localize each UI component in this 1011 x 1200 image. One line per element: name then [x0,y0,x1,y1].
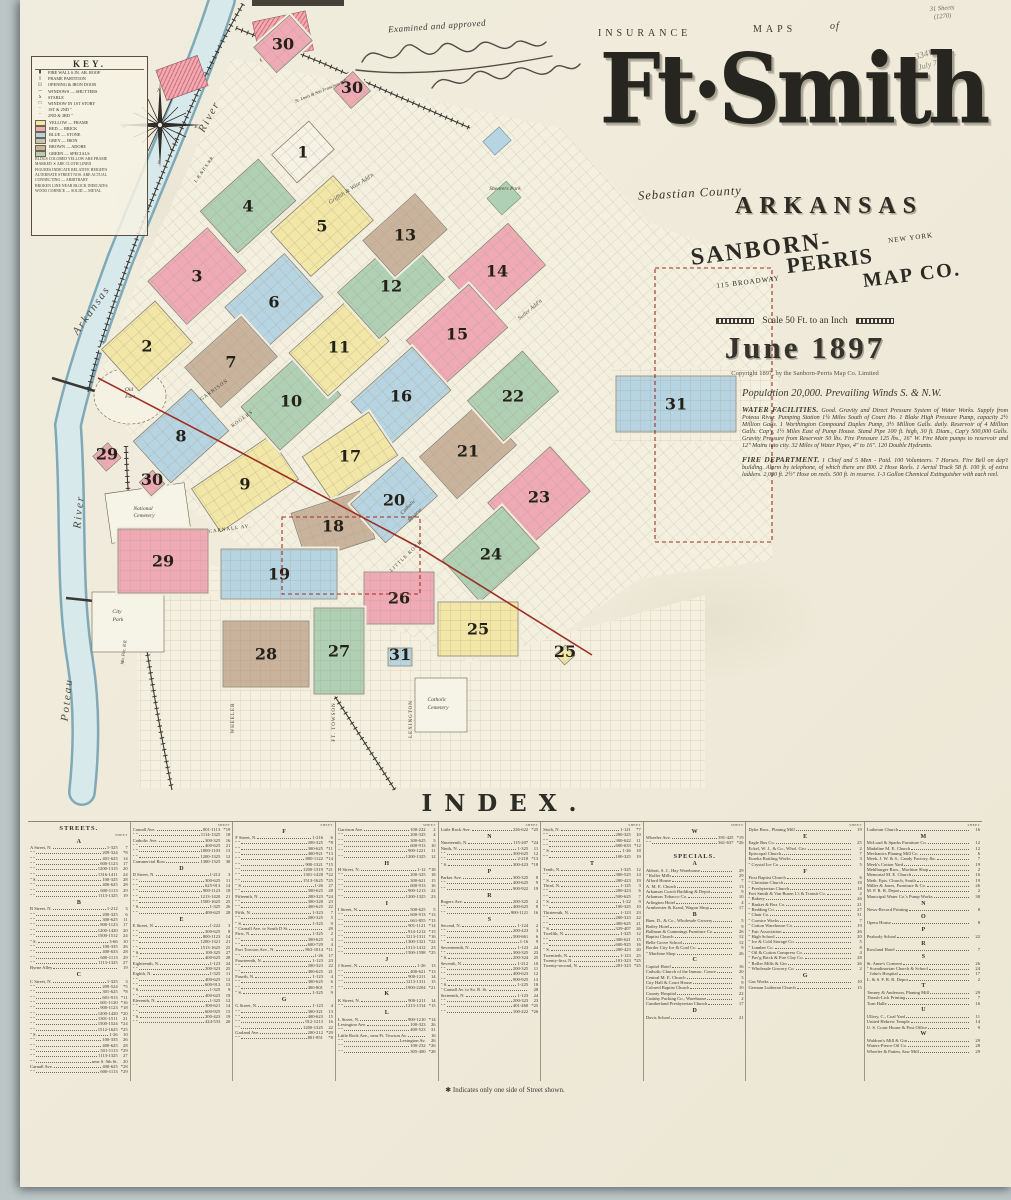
index-letter-header: P [441,869,539,875]
index-dot-leader [36,1019,97,1020]
publisher-city: NEW YORK [888,231,934,244]
index-entry: U. S. Court House & Post Office9 [867,1025,980,1030]
index-dot-leader [790,889,851,890]
index-entry-name: German Lutheran Church [748,985,795,990]
index-dot-leader [251,934,311,935]
index-dot-leader [549,945,614,946]
index-dot-leader [447,931,512,932]
index-entry-name: ″ Wholesale Grocery Co. [748,966,794,971]
state-label: ARKANSAS [735,193,923,220]
index-entry-sheet: 21 [733,1015,743,1020]
index-entry-name: Twenty-second, N. [543,963,578,968]
index-entry-sheet: 16 [970,827,980,832]
index-dot-leader [157,1001,209,1002]
index-column-9: SHEETLutheran Church16MMcLoud & Sparks F… [864,822,982,1081]
index-dot-leader [139,969,204,970]
index-dot-leader [447,907,512,908]
index-letter-header: G [748,973,861,979]
index-dot-leader [289,929,322,930]
index-entry-sheet: *21 [426,985,436,990]
index-dot-leader [920,1052,969,1053]
index-dot-leader [243,924,311,925]
index-dot-leader [139,846,204,847]
index-dot-leader [241,849,306,850]
index-entry: ″ S.1-3259 [235,990,333,995]
index-letter-header: F [748,869,861,875]
index-dot-leader [367,1025,409,1026]
index-dot-leader [241,966,306,967]
index-entry: Municipal Water Co.'s Pump Works30 [867,894,980,899]
index-dot-leader [241,1017,306,1018]
index-dot-leader [36,987,101,988]
index-dot-leader [447,859,517,860]
index-dot-leader [241,870,302,871]
index-entry-range: 600-1113 [100,1069,117,1074]
index-dot-leader [36,915,101,916]
index-dot-leader [930,993,969,994]
index-letter-header: M [867,834,980,840]
index-dot-leader [687,978,733,979]
index-dot-leader [448,958,512,959]
index-dot-leader [53,848,106,849]
index-dot-leader [447,1006,512,1007]
index-dot-leader [344,841,409,842]
index-dot-leader [909,980,969,981]
index-section-title: SPECIALS. [646,853,744,860]
key-symbol-list: ▮FIRE WALL 6 IN. AB. ROOF▯FRAME PARTITIO… [35,70,144,120]
index-dot-leader [447,889,512,890]
index-dot-leader [36,1072,99,1073]
index-sheet-label: SHEET [646,823,744,827]
index-entry-name: News-Record Printing [867,907,908,912]
index-dot-leader [241,1012,306,1013]
index-entry-sheet: *26 [733,840,743,845]
index-entry-name: Little Rock Ave., near Ft. Towson Av. [338,1033,407,1038]
index-entry: Dyke Bros., Planing Mill19 [748,827,861,832]
index-dot-leader [139,958,204,959]
index-letter-header: S [441,917,539,923]
index-dot-leader [241,988,306,989]
index-dot-leader [804,953,851,954]
index-dot-leader [344,857,405,858]
index-dot-leader [766,899,851,900]
index-dot-leader [463,878,512,879]
index-letter-header: W [646,829,744,835]
index-sheet-label: SHEET [235,823,333,827]
index-dot-leader [776,910,851,911]
index-dot-leader [896,950,969,951]
index-dot-leader [36,963,97,964]
index-dot-leader [139,902,200,903]
index-dot-leader [797,988,851,989]
index-entry: ″ Crystal Ice Co.5 [748,862,861,867]
index-spacer [646,846,744,851]
index-dot-leader [770,915,850,916]
index-entry-sheet: 15 [852,985,862,990]
index-entry: ″ ″801-851*8 [235,1035,333,1040]
index-entry-range: 400-523 [410,1027,425,1032]
index-entry-range: 361-637 [718,840,733,845]
index-entry-name: ″ ″ [338,950,343,955]
index-letter-header: C [30,972,128,978]
index-letter-header: B [646,912,744,918]
index-dot-leader [364,830,409,831]
index-dot-leader [344,1006,405,1007]
index-dot-leader [782,854,850,855]
index-dot-leader [139,942,200,943]
index-dot-leader [888,1004,969,1005]
index-dot-leader [489,990,528,991]
index-dot-leader [447,1001,512,1002]
index-dot-leader [775,948,851,949]
index-entry-sheet: 16 [970,1001,980,1006]
scale-text: Scale 50 Ft. to an Inch [762,316,847,326]
index-entry-name: Municipal Water Co.'s Pump Works [867,894,933,899]
index-dot-leader [38,880,102,881]
index-entry-name: Peabody School [867,934,897,939]
index-dot-leader [36,1040,101,1041]
index-entry: ″ ″100-222*26 [441,1009,539,1014]
index-dot-leader [360,1020,407,1021]
index-dot-leader [794,926,851,927]
index-dot-leader [468,843,512,844]
index-dot-leader [713,921,732,922]
index-column-3: SHEETFF Street, N.1-2166″ ″200-325*8″ ″3… [232,822,335,1081]
index-dot-leader [780,921,851,922]
index-entry-sheet: 19 [631,854,641,859]
index-dot-leader [344,977,407,978]
index-dot-leader [36,869,97,870]
index-column-7: SHEETWWheeler Ave.391-425*19″ ″361-637*2… [643,822,746,1081]
index-dot-leader [549,857,614,858]
index-dot-leader [447,953,512,954]
edition-date: June 1897 [660,330,950,366]
index-dot-leader [549,918,614,919]
index-dot-leader [549,875,614,876]
index-entry-name: Cumberland Presbyterian Church [646,1001,708,1006]
index-entry-name: ″ S. [441,862,448,867]
index-entry-name: ″ ″ [338,985,343,990]
index-column-2: SHEETCarnall Ave.801-1113*19″ ″1114-1325… [130,822,233,1081]
index-column-8: SHEETDyke Bros., Planing Mill19EEagle Bu… [745,822,863,1081]
index-entry: ″ ″1200-132512 [338,854,436,859]
index-dot-leader [241,1022,304,1023]
index-dot-leader [344,835,409,836]
index-dot-leader [36,920,101,921]
key-color-swatch [35,126,46,132]
index-dot-leader [710,908,733,909]
index-dot-leader [139,891,202,892]
index-dot-leader [156,875,209,876]
index-dot-leader [53,968,116,969]
index-entry-name: Commercial Row [133,859,166,864]
index-letter-header: A [30,839,128,845]
index-dot-leader [260,1033,306,1034]
index-title: INDEX. [28,790,982,817]
index-entry-range: 1900-2204 [406,985,426,990]
index-entry: Armbrester & Kraul, Wagon Shop17 [646,905,744,910]
index-dot-leader [243,993,311,994]
index-entry-sheet: 17 [733,1001,743,1006]
index-entry: ″ ″305-400*28 [338,1049,436,1054]
index-entry-name: ″ ″ [543,854,548,859]
index-entry: Wheeler & Patten, Saw Mill29 [867,1049,980,1054]
index-dot-leader [551,929,615,930]
index-dot-leader [139,1012,204,1013]
index-entry-range: 400-625 [205,910,220,915]
index-dot-leader [36,1046,101,1047]
index-entry-sheet: 30 [970,894,980,899]
index-dot-leader [784,883,851,884]
index-dot-leader [792,859,851,860]
index-dot-leader [447,980,512,981]
index-dot-leader [140,1017,204,1018]
index-dot-leader [549,897,614,898]
index-letter-header: D [133,866,231,872]
index-dot-leader [783,932,851,933]
index-dot-leader [670,927,732,928]
index-dot-leader [139,835,200,836]
population-line: Population 20,000. Prevailing Winds S. &… [742,388,1008,399]
index-entry: News-Record Printing8 [867,907,980,912]
index-entry-name: ″ Crystal Ice Co. [748,862,779,867]
index-dot-leader [808,849,851,850]
index-entry-range: 300-423 [513,862,528,867]
index-dot-leader [241,956,313,957]
index-dot-leader [344,988,405,989]
index-entry-sheet: *15 [426,1003,436,1008]
index-footnote: ✱ Indicates only one side of Street show… [28,1086,982,1094]
index-dot-leader [344,881,409,882]
scale-line: Scale 50 Ft. to an Inch [660,316,950,326]
index-dot-leader [459,849,517,850]
index-dot-leader [906,998,969,999]
index-dot-leader [551,950,615,951]
index-entry: ″ Machine Shop26 [646,951,744,956]
index-entry: ″ ″900-92219 [441,886,539,891]
index-dot-leader [462,926,517,927]
index-letter-header: W [867,1031,980,1037]
copyright-line: Copyright 1897, by the Sanborn-Perris Ma… [660,370,950,377]
index-dot-leader [549,835,614,836]
index-dot-leader [917,881,969,882]
index-column-5: SHEETLittle Rock Ave.226-622*25NNineteen… [438,822,541,1081]
index-dot-leader [770,982,851,983]
index-dot-leader [139,980,204,981]
index-dot-leader [53,982,106,983]
index-dot-leader [447,969,512,970]
index-entry-name: ″ ″ [338,894,343,899]
index-dot-leader [549,891,614,892]
index-dot-leader [708,1004,732,1005]
index-dot-leader [805,958,851,959]
index-dot-leader [160,964,208,965]
index-entry-range: 1300-1325 [200,859,220,864]
index-entry-range: 801-851 [308,1035,323,1040]
index-dot-leader [53,909,106,910]
scale-ruler-icon [716,318,754,324]
index-dot-leader [796,830,851,831]
index-dot-leader [549,841,614,842]
index-letter-header: C [646,957,744,963]
index-dot-leader [672,876,732,877]
index-letter-header: U [867,1007,980,1013]
index-dot-leader [344,915,409,916]
index-entry-range: 226-622 [513,827,528,832]
index-dot-leader [36,1030,97,1031]
index-dot-leader [140,907,208,908]
page-title: Ft·Smith [575,23,1011,157]
index-entry: Peabody School22 [867,934,980,939]
index-letter-header: P [867,927,980,933]
index-dot-leader [36,947,101,948]
index-column-1: STREETS.SHEETAA Street, N.1-3257″ ″209-3… [28,822,130,1081]
index-dot-leader [570,913,619,914]
index-dot-leader [139,932,204,933]
index-dot-leader [344,846,409,847]
index-dot-leader [408,1036,425,1037]
index-dot-leader [344,932,407,933]
index-dot-leader [139,948,200,949]
index-dot-leader [36,952,101,953]
index-letter-header: I [338,901,436,907]
index-dot-leader [937,859,969,860]
index-letter-header: E [133,917,231,923]
index-dot-leader [36,925,99,926]
index-dot-leader [263,961,311,962]
index-dot-leader [471,948,517,949]
index-dot-leader [690,988,732,989]
index-entry-sheet: 16 [528,910,538,915]
index-letter-header: G [235,997,333,1003]
index-entry-range: 900-1121 [511,910,528,915]
index-entry-sheet: 19 [528,886,538,891]
index-entry-name: Little Rock Ave. [441,827,471,832]
index-dot-leader [36,859,101,860]
index-dot-leader [344,942,405,943]
index-entry-sheet: *26 [528,1009,538,1014]
index-dot-leader [344,972,409,973]
index-columns: STREETS.SHEETAA Street, N.1-3257″ ″209-3… [28,821,982,1081]
index-letter-header: O [867,914,980,920]
index-dot-leader [908,1041,969,1042]
index-dot-leader [466,996,517,997]
index-dot-leader [447,854,512,855]
index-dot-leader [359,966,416,967]
index-dot-leader [448,985,516,986]
index-dot-leader [909,910,969,911]
index-entry-range: 100-222 [513,1009,528,1014]
index-dot-leader [928,843,969,844]
index-entry-name: L. & S. F. R. R. Depot [867,977,908,982]
index-dot-leader [155,926,208,927]
index-dot-leader [36,1024,97,1025]
index-entry-sheet: 30 [220,859,230,864]
key-color-label: GREEN — SPECIALS [49,151,90,157]
index-dot-leader [549,924,614,925]
index-dot-leader [787,878,851,879]
index-entry: German Lutheran Church15 [748,985,861,990]
index-dot-leader [561,870,619,871]
index-dot-leader [464,902,512,903]
index-dot-leader [906,1017,969,1018]
city-statistics: Population 20,000. Prevailing Winds S. &… [742,388,1008,485]
index-entry-sheet: 22 [970,934,980,939]
key-symbol-icon: ″ [35,113,45,119]
index-dot-leader [36,1062,91,1063]
index-entry-name: ″ ″ [338,854,343,859]
index-letter-header: T [867,983,980,989]
index-entry-range: 424-533 [205,1019,220,1024]
index-dot-leader [241,1028,302,1029]
fire-department-paragraph: FIRE DEPARTMENT. 1 Chief and 5 Men - Pai… [742,456,1008,479]
index-entry-sheet: *18 [528,862,538,867]
index-dot-leader [359,910,409,911]
index-entry-range: 1213-1314 [406,1003,426,1008]
index-dot-leader [676,903,732,904]
index-dot-leader [344,886,409,887]
index-letter-header: R [441,893,539,899]
index-entry-name: Davis School [646,1015,671,1020]
index-dot-leader [344,1052,409,1053]
index-dot-leader [900,891,969,892]
index-letter-header: B [30,900,128,906]
index-entry-sheet: *25 [426,950,436,955]
index-dot-leader [928,1028,969,1029]
index-dot-leader [677,994,732,995]
index-entry: ″ Wholesale Grocery Co.2 [748,966,861,971]
index-dot-leader [241,918,306,919]
index-entry-name: Byrne Alley [30,965,52,970]
index-dot-leader [344,921,409,922]
index-dot-leader [904,865,969,866]
index-dot-leader [707,999,732,1000]
index-dot-leader [153,974,209,975]
index-dot-leader [929,969,969,970]
index-dot-leader [788,964,851,965]
index-dot-leader [36,896,97,897]
index-entry: Rowland Hotel7 [867,947,980,952]
street-index: INDEX. STREETS.SHEETAA Street, N.1-3257″… [28,790,982,1094]
index-dot-leader [241,843,306,844]
index-entry-range: 305-400 [410,1049,425,1054]
index-dot-leader [36,1014,97,1015]
index-entry: ″ ″424-53320 [133,1019,231,1024]
index-letter-header: N [441,834,539,840]
index-dot-leader [463,964,516,965]
index-entry-range: 1500-1598 [406,950,426,955]
index-dot-leader [241,875,302,876]
index-dot-leader [36,853,101,854]
index-entry-sheet: 19 [118,965,128,970]
index-dot-leader [139,897,200,898]
index-dot-leader [698,948,733,949]
index-dot-leader [36,891,99,892]
index-dot-leader [776,937,851,938]
index-dot-leader [920,854,969,855]
index-dot-leader [549,940,614,941]
index-letter-header: S [867,954,980,960]
index-dot-leader [677,887,732,888]
index-dot-leader [447,974,512,975]
scale-ruler-icon [856,318,894,324]
index-dot-leader [241,907,306,908]
key-color-swatch [35,132,46,138]
index-dot-leader [140,953,204,954]
index-dot-leader [675,937,733,938]
index-entry: ″ ″600-1113*29 [30,1069,128,1074]
index-entry-sheet: *29 [118,1069,128,1074]
